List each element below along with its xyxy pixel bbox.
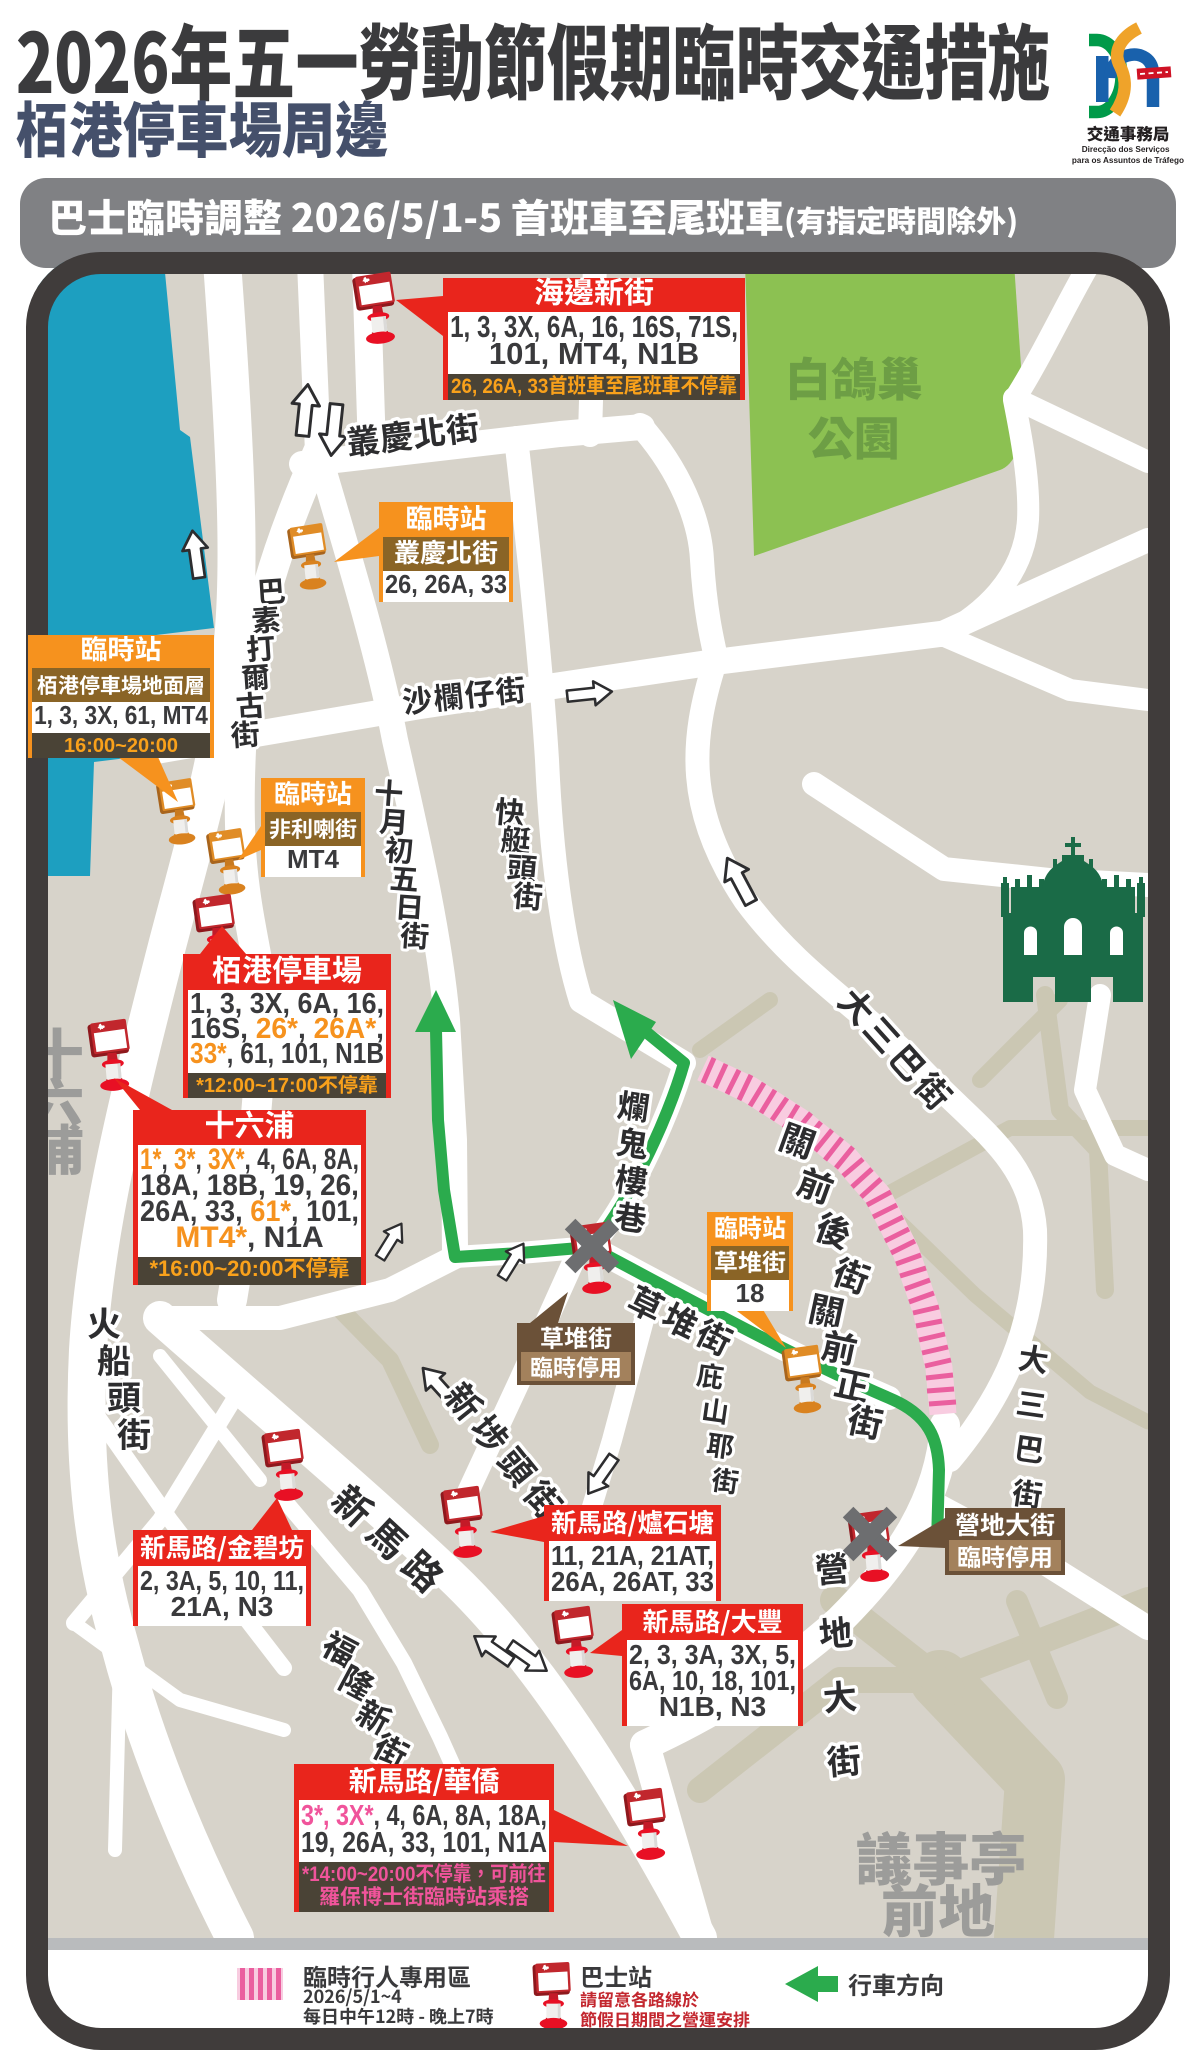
svg-text:*16:00~20:00: *16:00~20:00 [150,1256,284,1281]
svg-text:N1B, N3: N1B, N3 [659,1691,766,1722]
svg-text:26, 26A, 33: 26, 26A, 33 [451,375,548,398]
svg-text:1, 3, 3X, 61, MT4: 1, 3, 3X, 61, MT4 [34,702,208,731]
svg-text:26, 26A, 33: 26, 26A, 33 [385,571,507,599]
svg-text:Direcção dos Serviços: Direcção dos Serviços [1082,145,1170,154]
svg-text:21A, N3: 21A, N3 [171,1591,274,1622]
svg-text:MT4: MT4 [287,844,340,874]
svg-text:33*, 61, 101, N1B: 33*, 61, 101, N1B [190,1037,384,1069]
svg-text:18: 18 [736,1278,765,1308]
svg-text:19, 26A, 33, 101, N1A: 19, 26A, 33, 101, N1A [301,1826,547,1858]
svg-text:para os Assuntos de Tráfego: para os Assuntos de Tráfego [1072,156,1184,165]
svg-text:*14:00~20:00: *14:00~20:00 [302,1863,415,1886]
svg-text:26A, 26AT, 33: 26A, 26AT, 33 [551,1566,714,1597]
svg-text:MT4*, N1A: MT4*, N1A [175,1221,323,1254]
svg-text:101, MT4, N1B: 101, MT4, N1B [489,336,699,371]
svg-text:*12:00~17:00: *12:00~17:00 [196,1075,318,1097]
svg-text:16:00~20:00: 16:00~20:00 [64,735,178,757]
